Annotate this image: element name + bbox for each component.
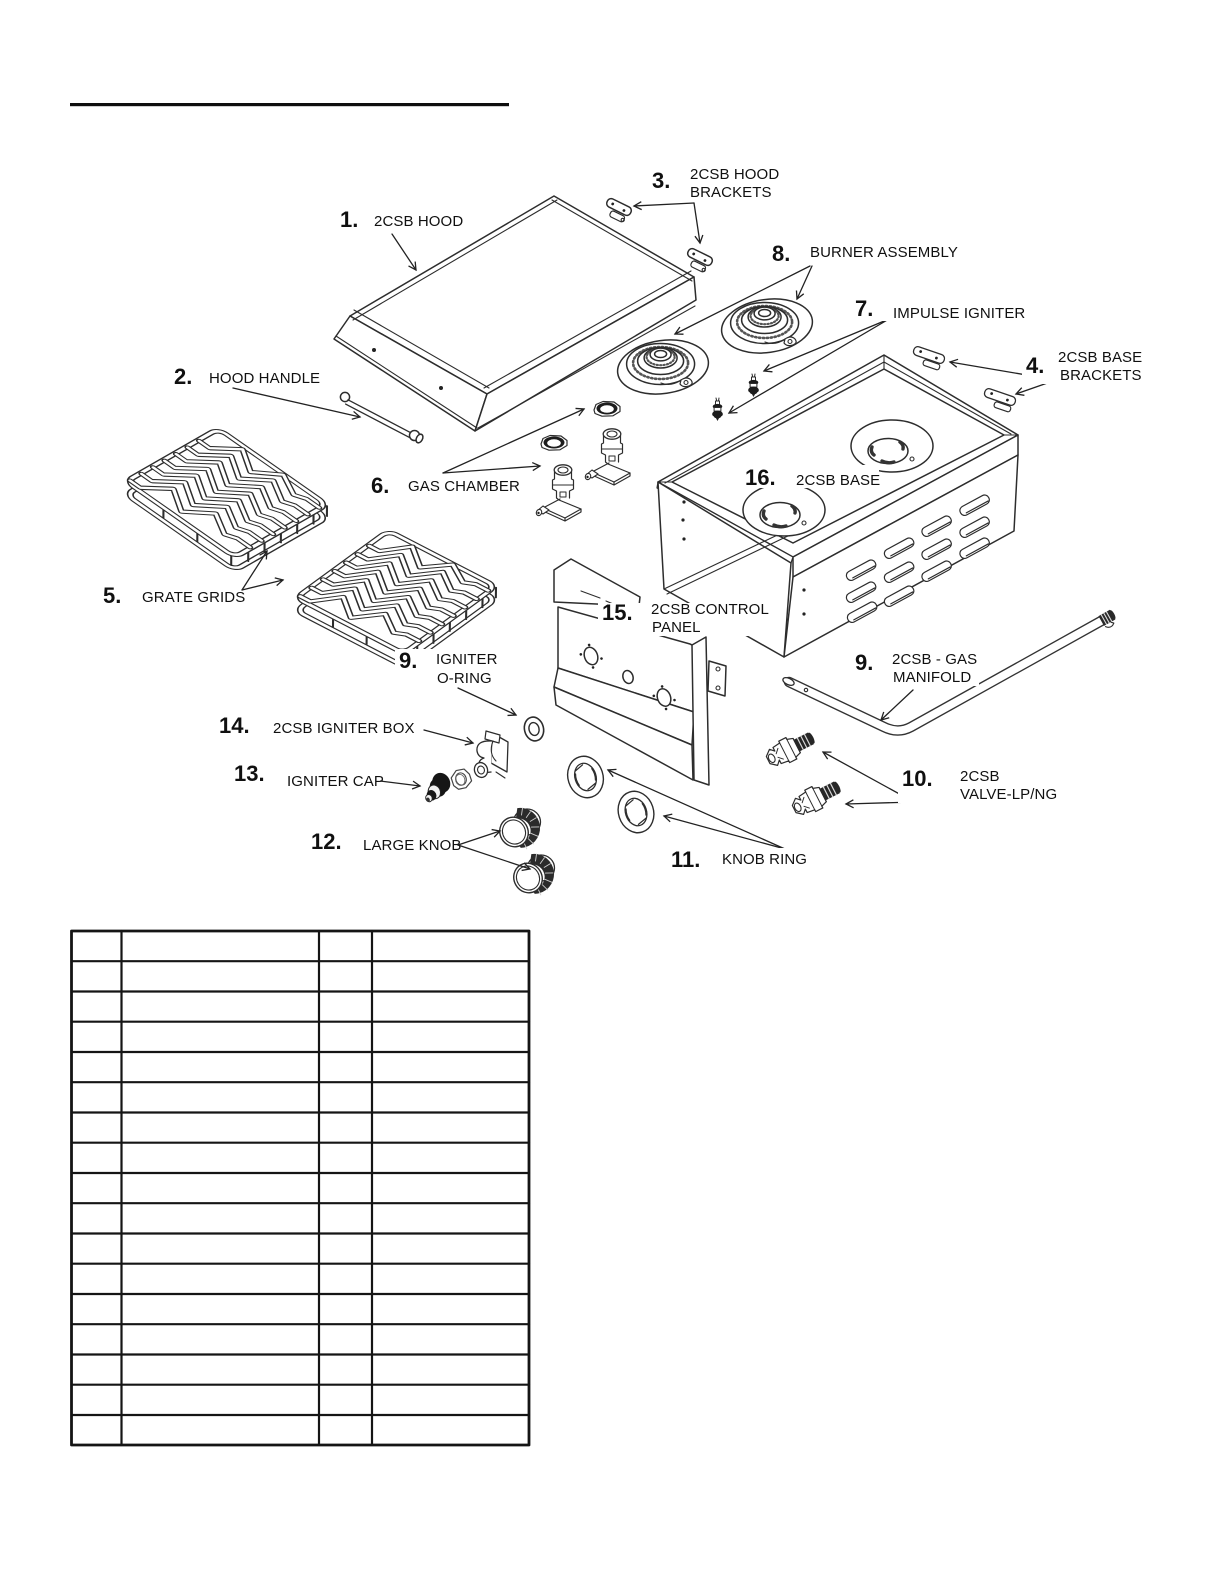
- svg-text:LARGE KNOB: LARGE KNOB: [363, 837, 462, 854]
- svg-text:5.: 5.: [103, 583, 121, 608]
- svg-text:3.: 3.: [652, 168, 670, 193]
- svg-text:2CSB IGNITER BOX: 2CSB IGNITER BOX: [273, 720, 415, 737]
- svg-text:8.: 8.: [772, 241, 790, 266]
- svg-text:4.: 4.: [1026, 353, 1044, 378]
- svg-text:6.: 6.: [371, 473, 389, 498]
- svg-text:VALVE-LP/NG: VALVE-LP/NG: [960, 786, 1057, 803]
- svg-text:GRATE GRIDS: GRATE GRIDS: [142, 589, 245, 606]
- svg-text:MANIFOLD: MANIFOLD: [893, 669, 971, 686]
- svg-text:BRACKETS: BRACKETS: [1060, 367, 1142, 384]
- svg-text:7.: 7.: [855, 296, 873, 321]
- svg-text:2CSB BASE: 2CSB BASE: [796, 472, 880, 489]
- svg-text:2CSB - GAS: 2CSB - GAS: [892, 651, 977, 668]
- svg-text:9.: 9.: [855, 650, 873, 675]
- svg-text:14.: 14.: [219, 713, 250, 738]
- svg-text:IMPULSE IGNITER: IMPULSE IGNITER: [893, 305, 1025, 322]
- svg-text:KNOB RING: KNOB RING: [722, 851, 807, 868]
- svg-text:11.: 11.: [671, 847, 700, 872]
- svg-text:15.: 15.: [602, 600, 633, 625]
- svg-text:BRACKETS: BRACKETS: [690, 184, 772, 201]
- svg-text:16.: 16.: [745, 465, 776, 490]
- svg-text:HOOD HANDLE: HOOD HANDLE: [209, 370, 320, 387]
- svg-text:9.: 9.: [399, 648, 417, 673]
- svg-text:1.: 1.: [340, 207, 358, 232]
- svg-text:2CSB HOOD: 2CSB HOOD: [690, 166, 779, 183]
- svg-text:2CSB BASE: 2CSB BASE: [1058, 349, 1142, 366]
- svg-text:IGNITER: IGNITER: [436, 651, 498, 668]
- svg-text:2CSB HOOD: 2CSB HOOD: [374, 213, 463, 230]
- svg-text:IGNITER CAP: IGNITER CAP: [287, 773, 384, 790]
- svg-text:2CSB CONTROL: 2CSB CONTROL: [651, 601, 769, 618]
- svg-text:12.: 12.: [311, 829, 342, 854]
- svg-text:13.: 13.: [234, 761, 265, 786]
- svg-text:10.: 10.: [902, 766, 933, 791]
- svg-text:2CSB: 2CSB: [960, 768, 1000, 785]
- svg-text:2.: 2.: [174, 364, 192, 389]
- svg-text:BURNER ASSEMBLY: BURNER ASSEMBLY: [810, 244, 958, 261]
- svg-text:GAS CHAMBER: GAS CHAMBER: [408, 478, 520, 495]
- svg-text:O-RING: O-RING: [437, 670, 492, 687]
- svg-text:PANEL: PANEL: [652, 619, 701, 636]
